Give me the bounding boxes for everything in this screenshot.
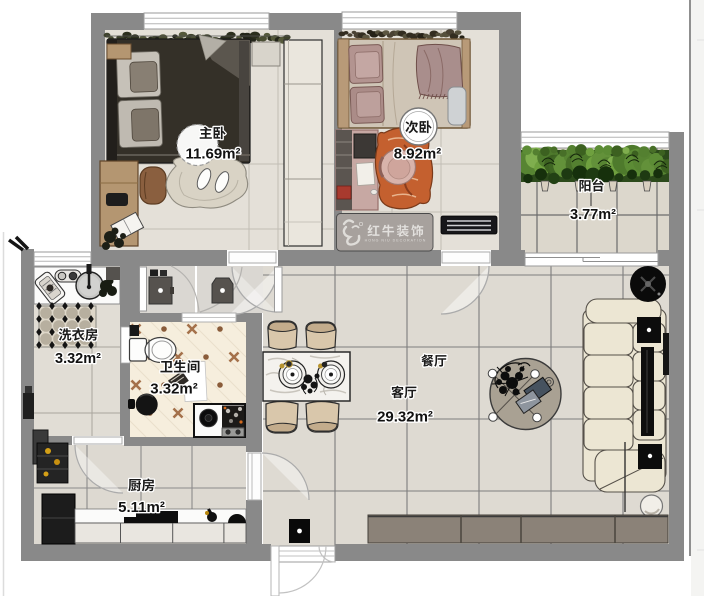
svg-text:3.32m²: 3.32m² — [150, 381, 198, 398]
svg-text:5.11m²: 5.11m² — [118, 499, 165, 516]
svg-text:29.32m²: 29.32m² — [377, 409, 433, 426]
svg-text:3.77m²: 3.77m² — [570, 207, 616, 223]
svg-text:11.69m²: 11.69m² — [185, 146, 240, 163]
svg-text:8.92m²: 8.92m² — [394, 146, 442, 163]
svg-text:3.32m²: 3.32m² — [55, 351, 101, 367]
svg-text:HONG NIU DECORATION: HONG NIU DECORATION — [365, 239, 427, 243]
